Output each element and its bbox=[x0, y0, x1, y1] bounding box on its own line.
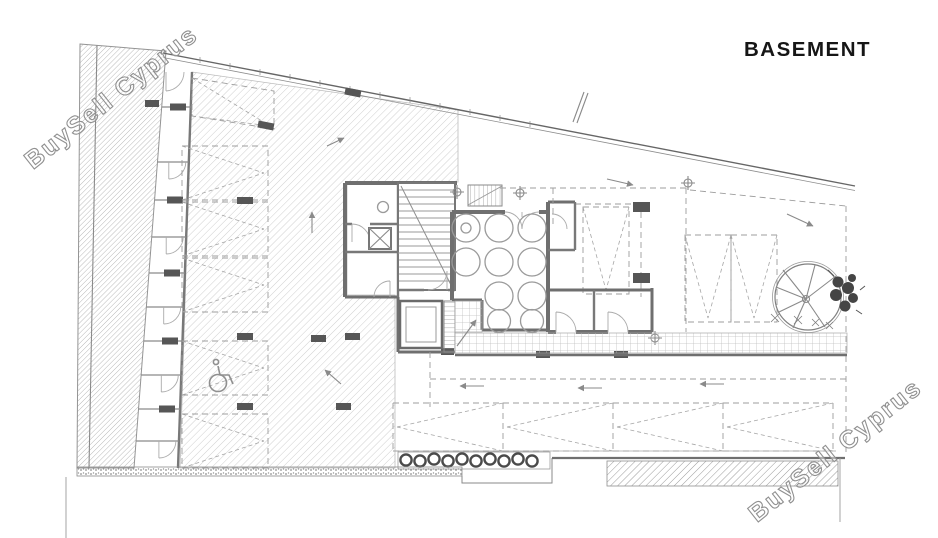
ground-star-marks bbox=[771, 314, 833, 329]
bottom-site-edges bbox=[66, 458, 845, 538]
watermark-text: BuySell Cyprus bbox=[743, 373, 927, 527]
parking-stalls-right bbox=[685, 235, 777, 322]
shaft-pit bbox=[398, 297, 455, 352]
elevator-shaft-icon bbox=[369, 228, 391, 249]
plan-title: BASEMENT bbox=[744, 38, 871, 61]
watermark-bottom-right: BuySell Cyprus bbox=[743, 373, 927, 527]
shrub-row bbox=[398, 452, 550, 469]
ladder-strip bbox=[444, 301, 455, 352]
stall-inside-building bbox=[583, 207, 629, 294]
parking-row-bottom bbox=[393, 403, 836, 451]
boundary-branch-line bbox=[573, 92, 588, 123]
stairs bbox=[398, 183, 455, 290]
east-rooms bbox=[548, 202, 652, 332]
sink-symbol bbox=[378, 202, 389, 213]
setback-dashed-lines bbox=[430, 188, 846, 455]
entry-stair bbox=[468, 185, 502, 206]
floor-plan-sheet: BuySell Cyprus BuySell Cyprus BASEMENT bbox=[0, 0, 938, 538]
plan-drawing: BuySell Cyprus BuySell Cyprus BASEMENT bbox=[0, 0, 938, 538]
